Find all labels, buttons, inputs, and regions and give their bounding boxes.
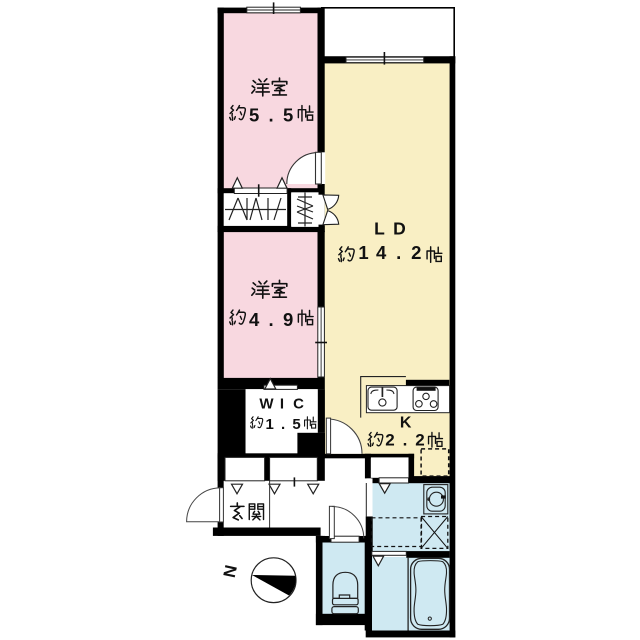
svg-text:1: 1 bbox=[358, 242, 368, 263]
svg-text:.: . bbox=[403, 431, 408, 450]
svg-text:C: C bbox=[293, 396, 304, 413]
svg-text:9: 9 bbox=[283, 309, 293, 330]
svg-text:2: 2 bbox=[415, 431, 424, 450]
svg-text:.: . bbox=[281, 416, 285, 433]
svg-text:1: 1 bbox=[266, 416, 274, 433]
svg-text:.: . bbox=[396, 242, 401, 263]
svg-text:.: . bbox=[269, 104, 274, 125]
svg-text:5: 5 bbox=[249, 104, 259, 125]
svg-text:W: W bbox=[259, 396, 274, 413]
svg-text:2: 2 bbox=[411, 242, 421, 263]
svg-text:5: 5 bbox=[283, 104, 293, 125]
svg-text:4: 4 bbox=[376, 242, 387, 263]
svg-text:.: . bbox=[269, 309, 274, 330]
svg-text:5: 5 bbox=[292, 416, 300, 433]
svg-text:4: 4 bbox=[249, 309, 260, 330]
svg-text:I: I bbox=[280, 396, 284, 413]
svg-text:L: L bbox=[374, 218, 385, 238]
svg-text:D: D bbox=[393, 218, 406, 238]
svg-text:K: K bbox=[400, 415, 412, 432]
svg-text:2: 2 bbox=[385, 431, 394, 450]
